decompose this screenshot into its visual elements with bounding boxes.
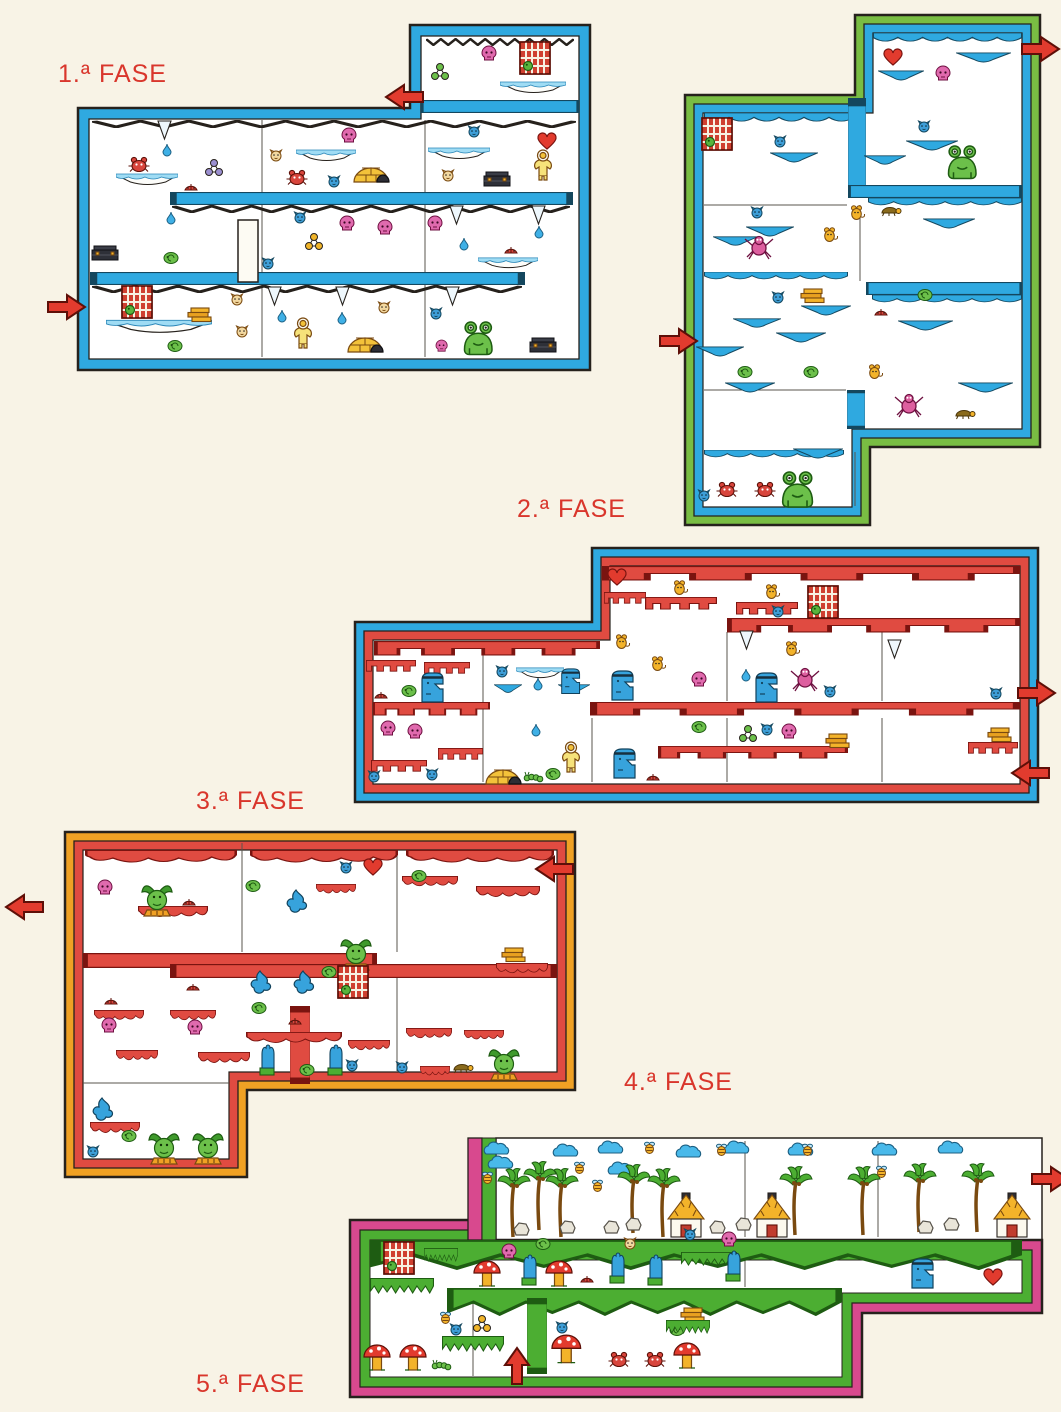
map-item-catblue xyxy=(557,1322,568,1333)
map-item-catblue xyxy=(397,1062,408,1073)
map-item-bluebar xyxy=(867,283,1020,295)
map-item-bee xyxy=(717,1144,727,1155)
map-item-beetle xyxy=(692,722,706,733)
map-item-catblue xyxy=(469,126,480,137)
map-item-stack xyxy=(530,338,556,352)
map-item-beetle xyxy=(322,967,336,978)
map-item-catblue xyxy=(919,121,930,132)
map-item-cat xyxy=(271,150,282,161)
map-item-catblue xyxy=(775,136,786,147)
map-item-bee xyxy=(645,1142,655,1153)
map-item-stack xyxy=(92,246,118,260)
map-item-beetle xyxy=(252,1003,266,1014)
map-item-skull xyxy=(378,220,392,234)
map-item-bee xyxy=(483,1172,493,1183)
map-item-catblue xyxy=(263,258,274,269)
map-item-hand xyxy=(522,1255,536,1285)
map-fase-4 xyxy=(6,832,575,1177)
map-item-cat xyxy=(443,170,454,181)
map-item-skull xyxy=(482,46,496,60)
map-item-skull xyxy=(188,1020,202,1034)
map-item-beetle xyxy=(536,1239,550,1250)
map-item-catblue xyxy=(685,1229,696,1240)
map-item-beetle xyxy=(168,341,182,352)
map-fase-3 xyxy=(355,548,1055,802)
label-fase-2: 2.ª FASE xyxy=(517,497,626,522)
map-item-bluebar xyxy=(848,102,866,194)
map-item-books xyxy=(681,1308,704,1322)
map-item-cage xyxy=(338,966,368,998)
map-item-bluebar xyxy=(94,273,522,285)
map-item-catblue xyxy=(347,1060,358,1071)
map-item-catblue xyxy=(88,1146,99,1157)
map-item-books xyxy=(502,948,525,962)
map-item-bee xyxy=(877,1166,887,1177)
map-item-bee xyxy=(441,1312,451,1323)
map-item-hand xyxy=(726,1251,740,1281)
map-item-beetle xyxy=(246,881,260,892)
map-item-bee xyxy=(803,1144,813,1155)
map-item-beetle xyxy=(300,1065,314,1076)
map-item-beetle xyxy=(546,769,560,780)
map-item-books xyxy=(826,734,849,748)
map-item-cat xyxy=(625,1238,636,1249)
map-item-cage xyxy=(520,42,550,74)
map-item-catblue xyxy=(369,771,380,782)
map-item-skull xyxy=(692,672,706,686)
map-item-cage xyxy=(122,286,152,318)
map-item-skull xyxy=(102,1018,116,1032)
map-item-skull xyxy=(502,1244,516,1258)
map-item-cat xyxy=(237,326,248,337)
map-item-bluebar xyxy=(173,193,569,205)
map-item-hand xyxy=(260,1045,274,1075)
map-item-catblue xyxy=(773,606,784,617)
map-item-beetle xyxy=(738,367,752,378)
map-fase-5 xyxy=(350,1138,1061,1397)
map-item-arrow-l xyxy=(6,895,43,919)
map-item-skull xyxy=(408,724,422,738)
label-fase-1: 1.ª FASE xyxy=(58,62,167,87)
map-item-catblue xyxy=(295,212,306,223)
map-item-bluebar xyxy=(847,392,865,428)
map-item-skull xyxy=(782,724,796,738)
map-item-catblue xyxy=(773,292,784,303)
map-item-stack xyxy=(484,172,510,186)
map-item-beetle xyxy=(402,686,416,697)
level-maps-illustration xyxy=(0,0,1061,1412)
map-item-hand xyxy=(610,1253,624,1283)
map-item-skull xyxy=(436,340,447,351)
map-item-hand xyxy=(328,1045,342,1075)
map-item-bee xyxy=(593,1180,603,1191)
map-item-cat xyxy=(379,302,390,313)
map-item-door xyxy=(238,220,258,282)
map-item-cage xyxy=(702,118,732,150)
map-item-hand xyxy=(648,1255,662,1285)
map-item-skull xyxy=(936,66,950,80)
map-item-beetle xyxy=(122,1131,136,1142)
map-item-bluebar xyxy=(422,101,577,113)
map-item-skull xyxy=(381,721,395,735)
map-item-cat xyxy=(232,294,243,305)
map-item-skull xyxy=(342,128,356,142)
map-item-cage xyxy=(808,586,838,618)
map-item-beetle xyxy=(164,253,178,264)
map-item-skull xyxy=(340,216,354,230)
map-item-catblue xyxy=(991,688,1002,699)
map-item-catblue xyxy=(451,1324,462,1335)
map-item-bee xyxy=(575,1162,585,1173)
map-item-catblue xyxy=(752,207,763,218)
label-fase-5: 5.ª FASE xyxy=(196,1372,305,1397)
map-item-catblue xyxy=(427,769,438,780)
map-item-skull xyxy=(428,216,442,230)
label-fase-3: 3.ª FASE xyxy=(196,789,305,814)
magazine-page: 1.ª FASE 2.ª FASE 3.ª FASE 4.ª FASE 5.ª … xyxy=(0,0,1061,1412)
map-item-bluebar xyxy=(849,186,1020,198)
map-item-beetle xyxy=(412,871,426,882)
map-item-catblue xyxy=(329,176,340,187)
map-item-beetle xyxy=(918,290,932,301)
map-item-skull xyxy=(98,880,112,894)
label-fase-4: 4.ª FASE xyxy=(624,1070,733,1095)
map-fase-2 xyxy=(660,15,1059,525)
map-item-catblue xyxy=(497,666,508,677)
map-item-cage xyxy=(384,1242,414,1274)
map-item-skull xyxy=(722,1232,736,1246)
map-item-catblue xyxy=(825,686,836,697)
map-item-books xyxy=(988,728,1011,742)
map-item-books xyxy=(801,289,824,303)
map-item-catblue xyxy=(699,490,710,501)
map-item-beetle xyxy=(804,367,818,378)
map-item-catblue xyxy=(431,308,442,319)
map-item-greenbar xyxy=(527,1301,547,1371)
map-item-catblue xyxy=(762,724,773,735)
map-item-catblue xyxy=(341,862,352,873)
